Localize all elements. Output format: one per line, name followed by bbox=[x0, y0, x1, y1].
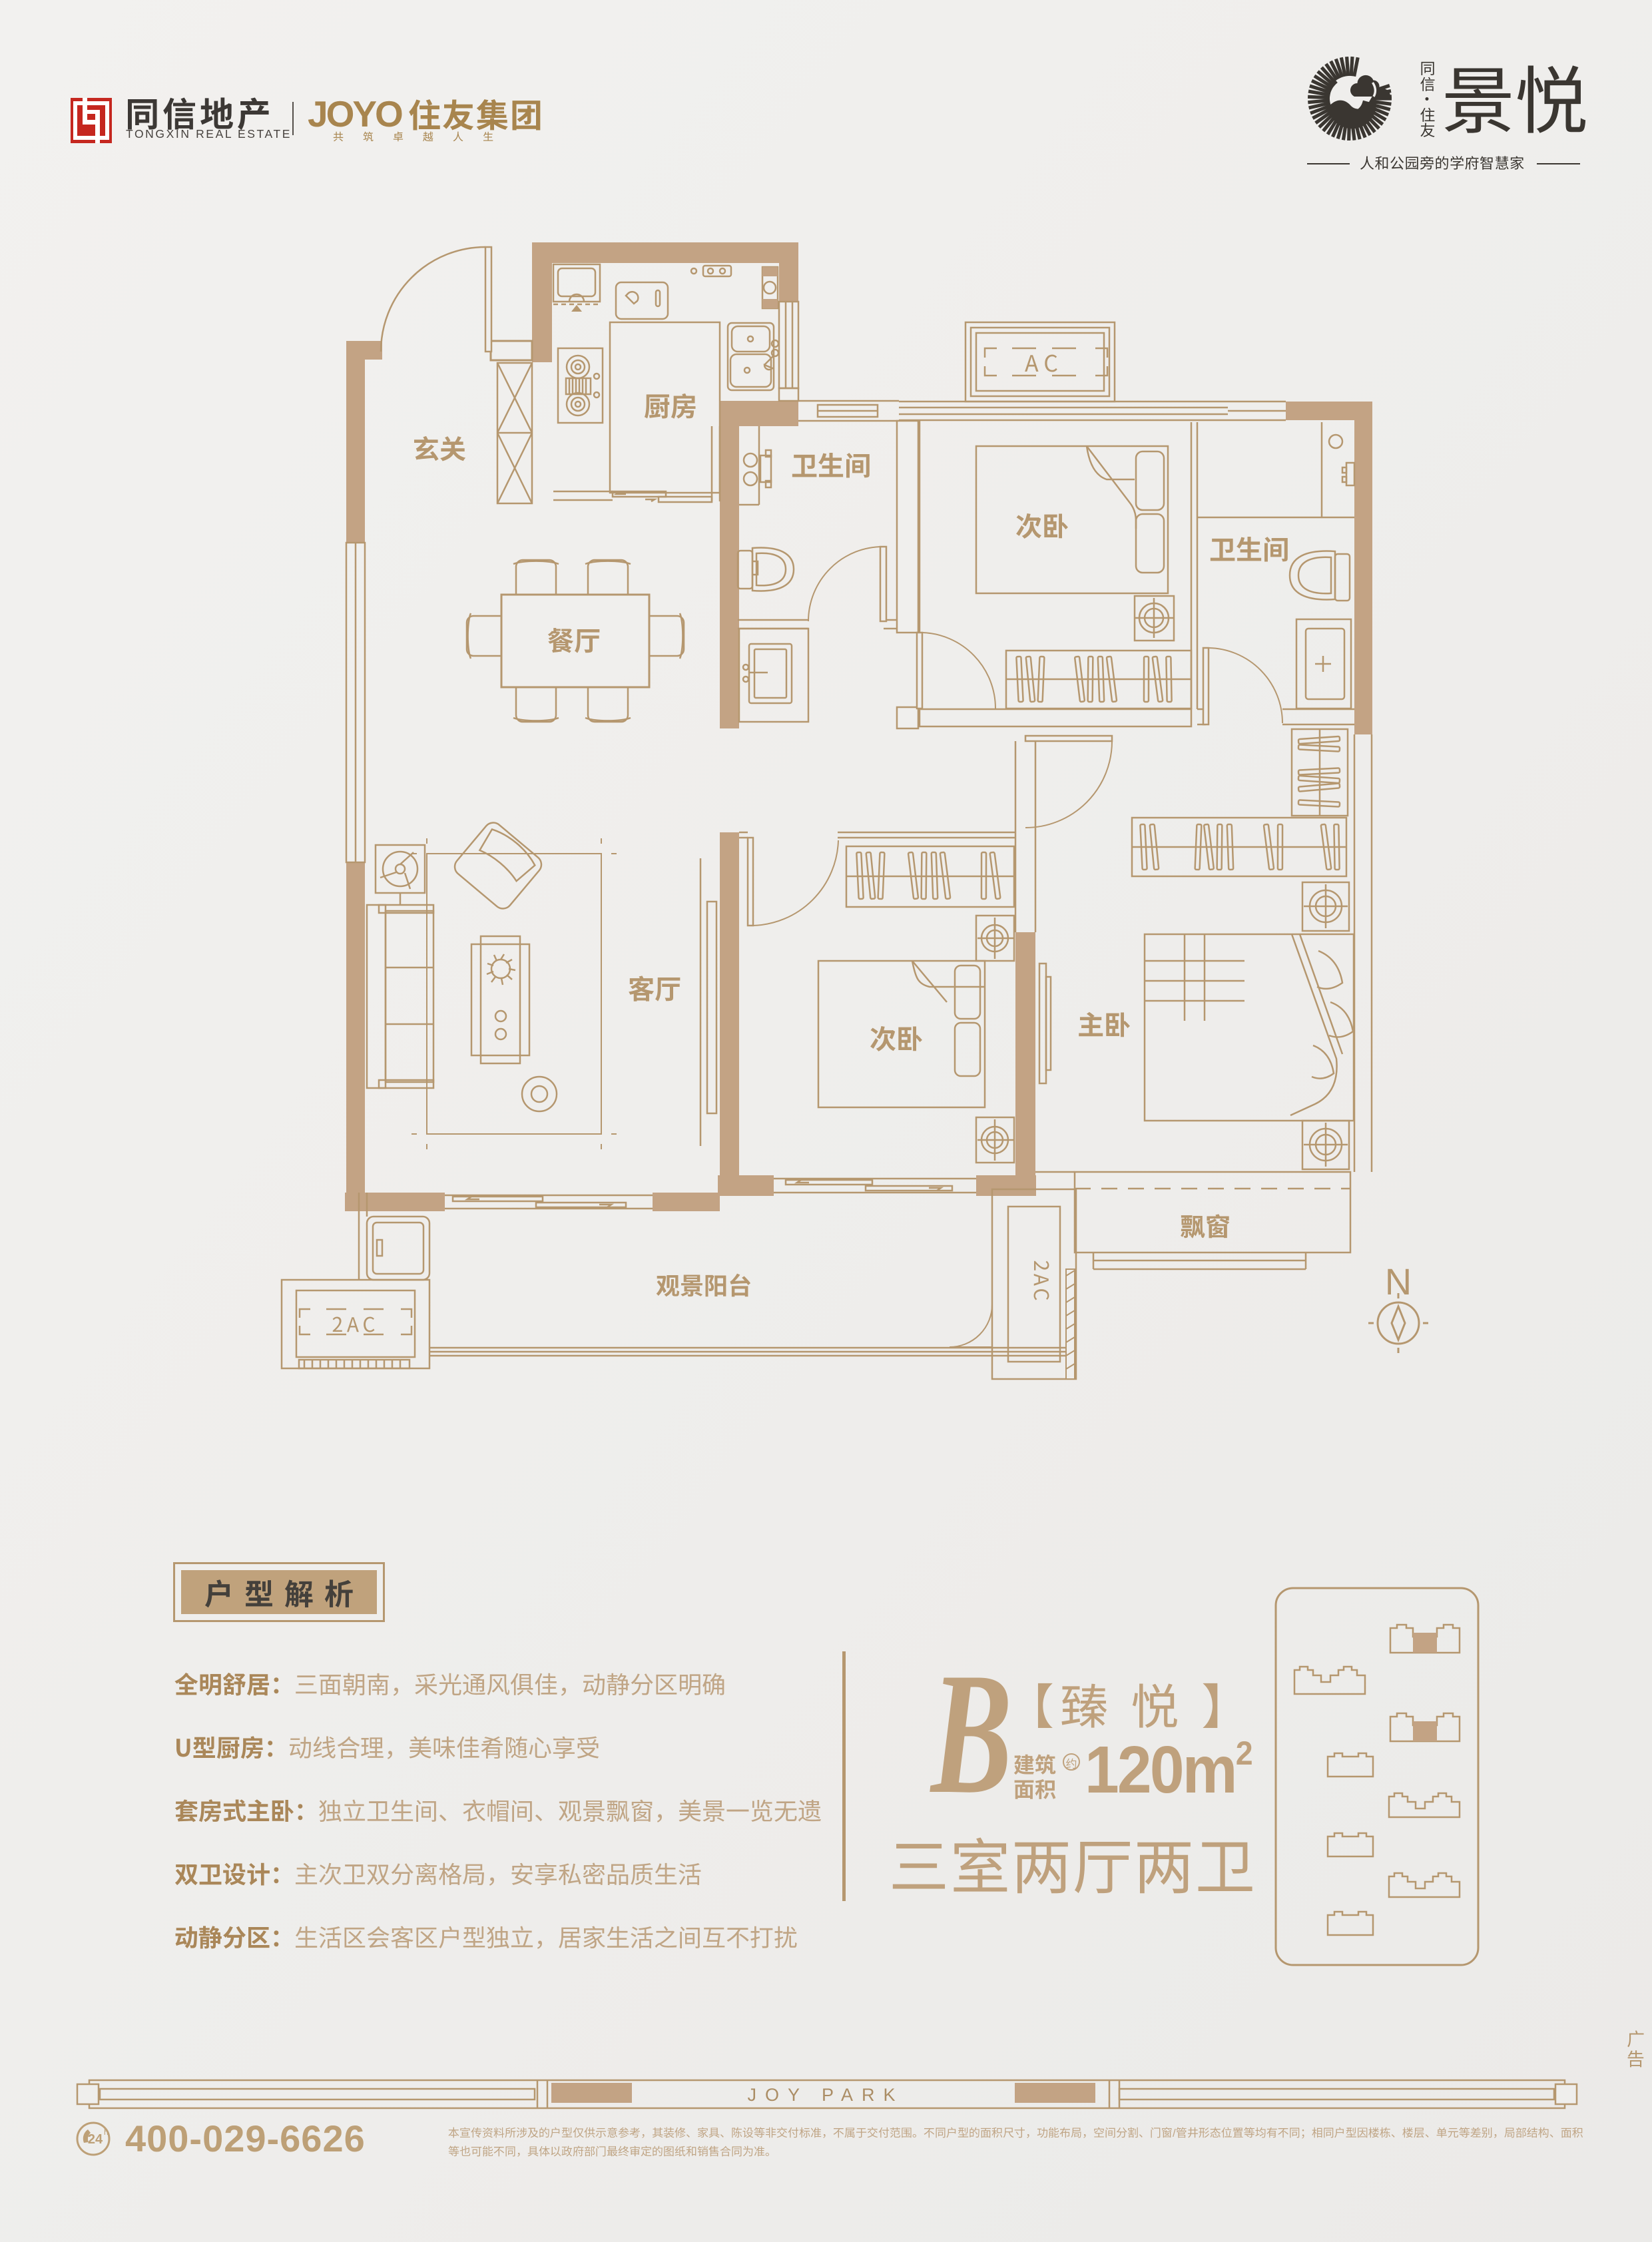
svg-text:2AC: 2AC bbox=[332, 1308, 380, 1338]
svg-text:卫生间: 卫生间 bbox=[791, 445, 871, 483]
svg-text:JOY PARK: JOY PARK bbox=[747, 2085, 904, 2105]
svg-text:卫生间: 卫生间 bbox=[1209, 529, 1289, 567]
svg-text:玄关: 玄关 bbox=[413, 428, 466, 467]
svg-text:h: h bbox=[104, 2127, 109, 2137]
svg-text:N: N bbox=[1385, 1261, 1412, 1302]
svg-text:2AC: 2AC bbox=[1028, 1260, 1057, 1304]
svg-text:次卧: 次卧 bbox=[870, 1018, 923, 1057]
svg-text:24: 24 bbox=[88, 2132, 103, 2147]
svg-text:飘窗: 飘窗 bbox=[1180, 1207, 1231, 1243]
svg-text:次卧: 次卧 bbox=[1015, 505, 1069, 544]
svg-text:观景阳台: 观景阳台 bbox=[656, 1267, 752, 1302]
svg-text:AC: AC bbox=[1025, 346, 1063, 378]
svg-text:餐厅: 餐厅 bbox=[547, 620, 601, 659]
svg-text:客厅: 客厅 bbox=[628, 968, 681, 1007]
svg-text:主卧: 主卧 bbox=[1077, 1004, 1131, 1043]
svg-text:厨房: 厨房 bbox=[644, 386, 697, 424]
